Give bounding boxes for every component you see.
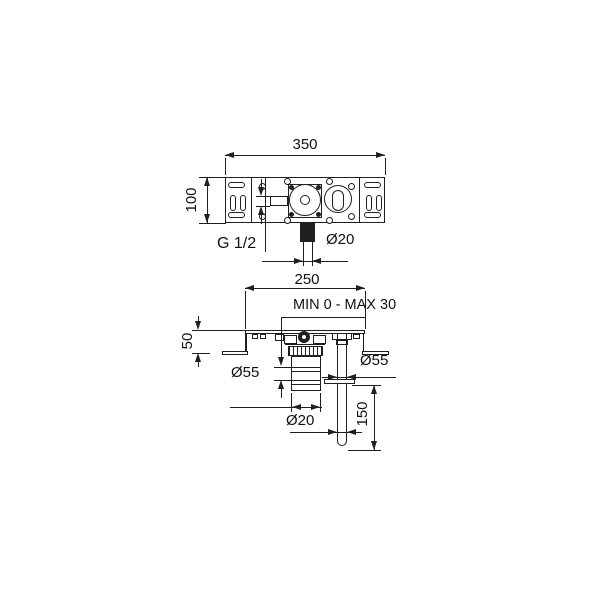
fixing-hole (326, 178, 333, 185)
dim-line (261, 215, 262, 224)
pipe-edge-line (303, 242, 304, 266)
dim-line (281, 317, 282, 358)
valve-side-block (313, 335, 326, 344)
arrowhead (328, 429, 337, 435)
clip-tab (252, 334, 258, 339)
extension-line (320, 393, 321, 412)
arrowhead (312, 258, 321, 264)
valve-base-line (285, 344, 325, 345)
mounting-slot (366, 195, 372, 211)
dim-line (281, 389, 282, 398)
dim-label-plate-width: 250 (287, 272, 327, 288)
dim-line-350 (225, 155, 385, 156)
extension-line (225, 158, 226, 175)
mounting-slot (240, 195, 246, 211)
dim-label-pipe: Ø20 (326, 232, 354, 248)
body-sleeve (291, 356, 321, 391)
dim-line-pipe (262, 261, 348, 262)
extension-line (256, 196, 270, 197)
arrowhead (371, 385, 377, 394)
fixing-hole (326, 217, 333, 224)
sleeve-band-line (292, 384, 320, 385)
extension-line (192, 330, 246, 331)
leader-line (282, 317, 365, 318)
flange-bolt (316, 212, 321, 217)
extension-line (274, 367, 291, 368)
arrowhead (347, 429, 356, 435)
extension-line (352, 385, 381, 386)
plate-left-wall (245, 334, 247, 352)
arrowhead (356, 285, 365, 291)
inlet-stub (270, 196, 288, 206)
left-plate-divider (251, 178, 252, 222)
sleeve-band-line (292, 380, 320, 381)
extension-line (291, 393, 292, 412)
dim-line-50 (198, 361, 199, 367)
arrowhead (371, 441, 377, 450)
plate-right-wall (363, 334, 365, 352)
arrowhead (258, 187, 264, 196)
arrowhead (258, 206, 264, 215)
dim-label-body-diameter: Ø55 (231, 365, 259, 381)
mounting-slot (364, 182, 381, 188)
sleeve-band-line (292, 367, 320, 368)
dim-label-pipe-length: 150 (355, 394, 371, 434)
arrowhead (328, 374, 337, 380)
sleeve-band-line (292, 371, 320, 372)
clip-tab (260, 334, 266, 339)
arrowhead (292, 404, 301, 410)
extension-line (348, 450, 381, 451)
arrowhead (204, 214, 210, 223)
arrowhead (347, 374, 356, 380)
valve-side-block (284, 335, 297, 344)
arrowhead (225, 152, 234, 158)
dim-label-depth: 50 (180, 321, 196, 361)
extension-line (199, 177, 226, 178)
thread-label: G 1/2 (217, 236, 256, 252)
dim-label-height: 100 (184, 180, 200, 220)
fixing-hole (284, 217, 291, 224)
valve-ball-center (302, 335, 306, 339)
arrowhead (311, 404, 320, 410)
extension-line (199, 223, 226, 224)
valve-center-hole (300, 195, 310, 205)
clip-tab (275, 334, 284, 341)
mounting-slot (228, 212, 245, 218)
dim-label-pipe-diameter: Ø20 (286, 413, 314, 429)
outlet-cylinder (332, 190, 344, 211)
pipe-end-cap (337, 437, 348, 446)
arrowhead (278, 380, 284, 389)
spout-pipe-edge (346, 333, 348, 438)
arrowhead (278, 357, 284, 366)
left-mount-foot (222, 351, 248, 355)
drop-pipe-solid (300, 222, 315, 242)
dim-line-body (230, 407, 322, 408)
ribbed-collar (288, 346, 323, 356)
extension-line (245, 291, 246, 329)
leader-line (265, 178, 266, 252)
dim-label-width: 350 (285, 137, 325, 153)
fixing-hole (348, 183, 355, 190)
arrowhead (245, 285, 254, 291)
arrowhead (204, 177, 210, 186)
mounting-slot (230, 195, 236, 211)
right-plate-divider (359, 178, 360, 222)
extension-line (385, 158, 386, 175)
technical-drawing: 350 100 G 1/2 Ø20 (0, 0, 600, 600)
mounting-slot (376, 195, 382, 211)
adjustment-label: MIN 0 - MAX 30 (293, 297, 396, 313)
pipe-connector (332, 333, 352, 340)
mounting-slot (228, 182, 245, 188)
arrowhead (376, 152, 385, 158)
dim-line-250 (245, 288, 365, 289)
clip-tab (353, 334, 360, 339)
spout-pipe-edge (337, 333, 339, 438)
dim-label-flange-diameter: Ø55 (360, 353, 388, 369)
flange-bolt (289, 212, 294, 217)
fixing-hole (348, 213, 355, 220)
arrowhead (294, 258, 303, 264)
mounting-slot (364, 212, 381, 218)
